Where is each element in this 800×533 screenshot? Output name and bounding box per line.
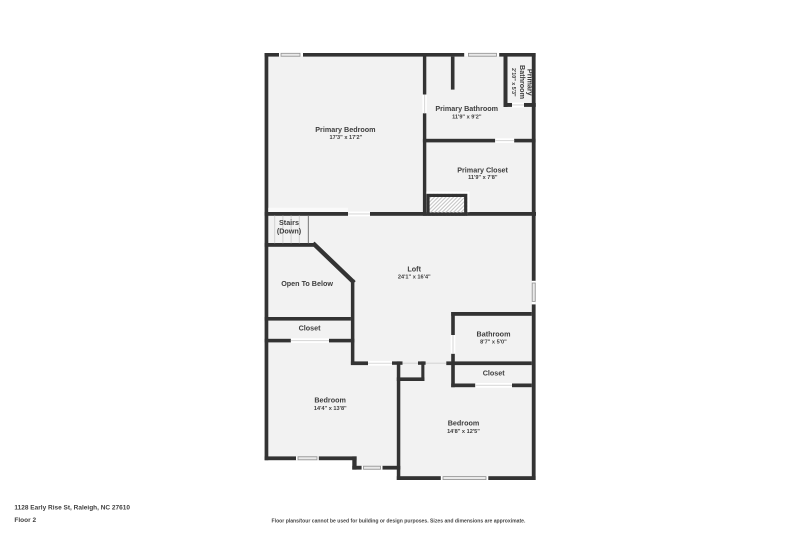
svg-text:Bathroom: Bathroom [518,65,527,99]
svg-text:14'8" x 12'5": 14'8" x 12'5" [447,429,480,435]
svg-text:Closet: Closet [299,323,322,332]
svg-text:2'10" x 5'3": 2'10" x 5'3" [510,68,516,97]
svg-text:(Down): (Down) [277,227,302,236]
svg-text:14'4" x 13'8": 14'4" x 13'8" [314,406,347,412]
svg-text:8'7" x 5'0": 8'7" x 5'0" [480,340,507,346]
svg-text:Loft: Loft [407,264,421,273]
svg-text:Floor 2: Floor 2 [14,517,36,524]
svg-text:24'1" x 16'4": 24'1" x 16'4" [398,275,431,281]
svg-text:Bedroom: Bedroom [448,419,480,428]
svg-text:Primary Bedroom: Primary Bedroom [315,125,375,134]
svg-text:1128 Early Rise St, Raleigh, N: 1128 Early Rise St, Raleigh, NC 27610 [14,504,130,511]
svg-text:Bedroom: Bedroom [314,396,346,405]
svg-text:Floor plans/tour cannot be use: Floor plans/tour cannot be used for buil… [272,519,526,525]
svg-text:11'9" x 7'8": 11'9" x 7'8" [468,175,498,181]
svg-text:Closet: Closet [483,369,506,378]
svg-text:17'3" x 17'2": 17'3" x 17'2" [329,135,362,141]
svg-text:Open To Below: Open To Below [281,279,333,288]
svg-text:Primary Closet: Primary Closet [457,166,508,175]
svg-text:Bathroom: Bathroom [477,330,511,339]
svg-text:11'9" x 9'2": 11'9" x 9'2" [452,115,482,121]
svg-text:Primary Bathroom: Primary Bathroom [435,104,498,113]
